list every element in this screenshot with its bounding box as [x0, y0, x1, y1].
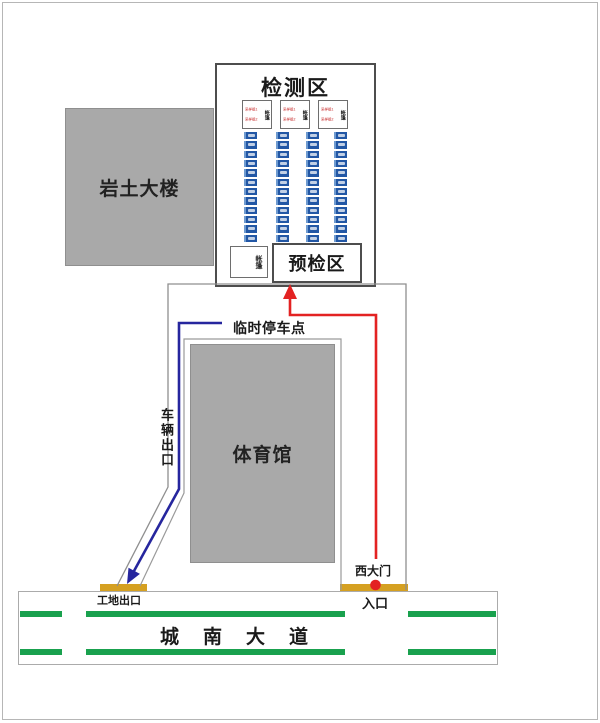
precheck-tent: 帐篷 — [230, 246, 268, 278]
queue-cell — [334, 235, 347, 242]
queue-cell — [334, 207, 347, 214]
road-name: 城南大道 — [6, 622, 486, 649]
queue-cell — [276, 151, 289, 158]
geotech-building: 岩土大楼 — [65, 108, 214, 266]
road-lane-dash — [408, 611, 496, 617]
tent-label: 帐篷 — [255, 255, 262, 269]
queue-cell — [276, 207, 289, 214]
road-lane-dash — [20, 611, 62, 617]
site-map: 检测区 采样组1 采样组2 帐篷 采样组1 采样组2 帐篷 采样组1 采样组2 … — [0, 0, 600, 723]
queue-lane — [306, 132, 319, 242]
tent-station-line: 采样组1 — [245, 108, 253, 112]
road-lane-dash — [86, 611, 345, 617]
precheck-area-box: 预检区 — [272, 243, 362, 283]
queue-cell — [276, 188, 289, 195]
queue-cell — [276, 132, 289, 139]
tent-station-line: 采样组2 — [321, 118, 329, 122]
tent-side: 帐篷 — [299, 101, 309, 128]
queue-cell — [244, 235, 257, 242]
queue-cell — [276, 225, 289, 232]
queue-cell — [276, 169, 289, 176]
queue-cell — [306, 225, 319, 232]
tent-label: 帐篷 — [301, 109, 306, 119]
queue-cell — [306, 207, 319, 214]
queue-cell — [276, 160, 289, 167]
queue-cell — [306, 197, 319, 204]
queue-cell — [244, 207, 257, 214]
queue-cell — [244, 169, 257, 176]
queue-cell — [306, 235, 319, 242]
queue-cell — [244, 197, 257, 204]
west-gate-bar — [340, 584, 408, 591]
queue-cell — [334, 151, 347, 158]
queue-cell — [306, 160, 319, 167]
tent-station-line: 采样组2 — [245, 118, 253, 122]
tent-station-lines: 采样组1 采样组2 — [319, 101, 337, 128]
tent-station-line: 采样组1 — [321, 108, 329, 112]
tent-station-line: 采样组2 — [283, 118, 291, 122]
sampling-tent: 采样组1 采样组2 帐篷 — [242, 100, 272, 129]
queue-cell — [244, 179, 257, 186]
queue-cell — [244, 225, 257, 232]
queue-cell — [306, 132, 319, 139]
tent-side: 帐篷 — [261, 101, 271, 128]
queue-cell — [276, 179, 289, 186]
road-lane-dash — [20, 649, 62, 655]
queue-cell — [334, 160, 347, 167]
road-lane-dash — [408, 649, 496, 655]
queue-cell — [334, 188, 347, 195]
queue-cell — [306, 169, 319, 176]
testing-area-title: 检测区 — [217, 72, 374, 102]
sampling-tent: 采样组1 采样组2 帐篷 — [280, 100, 310, 129]
queue-cell — [276, 141, 289, 148]
queue-lane — [276, 132, 289, 242]
queue-cell — [334, 225, 347, 232]
tent-station-line: 采样组1 — [283, 108, 291, 112]
sampling-tent: 采样组1 采样组2 帐篷 — [318, 100, 348, 129]
queue-cell — [334, 132, 347, 139]
queue-cell — [276, 197, 289, 204]
tent-side: 帐篷 — [337, 101, 347, 128]
queue-cell — [334, 216, 347, 223]
queue-cell — [276, 235, 289, 242]
queue-cell — [306, 179, 319, 186]
queue-lane — [334, 132, 347, 242]
queue-cell — [306, 188, 319, 195]
queue-lane — [244, 132, 257, 242]
queue-cell — [276, 216, 289, 223]
queue-cell — [334, 141, 347, 148]
site-exit-gate-bar — [100, 584, 147, 591]
queue-cell — [306, 216, 319, 223]
queue-cell — [244, 141, 257, 148]
queue-cell — [306, 141, 319, 148]
queue-cell — [334, 169, 347, 176]
queue-cell — [306, 151, 319, 158]
tent-label: 帐篷 — [263, 109, 268, 119]
tent-label: 帐篷 — [339, 109, 344, 119]
tent-station-lines: 采样组1 采样组2 — [281, 101, 299, 128]
queue-cell — [334, 179, 347, 186]
queue-cell — [244, 216, 257, 223]
tent-station-lines: 采样组1 采样组2 — [243, 101, 261, 128]
gymnasium-building: 体育馆 — [190, 344, 335, 563]
queue-cell — [244, 188, 257, 195]
queue-cell — [244, 160, 257, 167]
site-exit-label: 工地出口 — [97, 592, 141, 608]
road-lane-dash — [86, 649, 345, 655]
queue-cell — [334, 197, 347, 204]
temp-parking-label: 临时停车点 — [233, 318, 306, 338]
queue-cell — [244, 132, 257, 139]
west-gate-label: 西大门 — [355, 562, 391, 579]
queue-cell — [244, 151, 257, 158]
vehicle-exit-label: 车辆出口 — [157, 408, 176, 468]
entrance-label: 入口 — [362, 593, 388, 612]
